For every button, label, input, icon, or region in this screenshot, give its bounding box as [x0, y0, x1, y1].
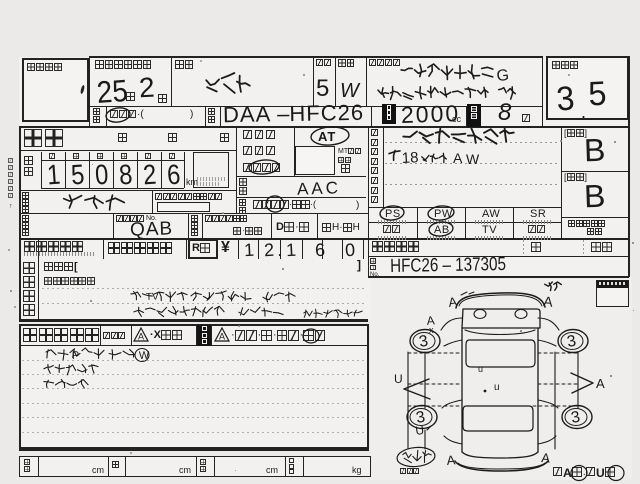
svg-text:u: u — [478, 364, 483, 374]
svg-text:u: u — [494, 382, 500, 393]
svg-text:G: G — [496, 67, 510, 85]
svg-text:U: U — [394, 372, 403, 386]
svg-text:3: 3 — [566, 333, 578, 351]
svg-text:A: A — [446, 452, 456, 468]
svg-text:TV: TV — [146, 292, 159, 303]
svg-text:3: 3 — [570, 409, 582, 427]
svg-text:A: A — [596, 376, 605, 391]
svg-text:W: W — [466, 151, 480, 167]
svg-text:A: A — [453, 150, 463, 166]
svg-text:x: x — [429, 325, 434, 335]
svg-text:18: 18 — [401, 149, 419, 167]
svg-text:A: A — [543, 293, 554, 310]
svg-text:3: 3 — [418, 333, 430, 351]
svg-text:P: P — [72, 350, 80, 362]
svg-text:A: A — [447, 294, 458, 310]
